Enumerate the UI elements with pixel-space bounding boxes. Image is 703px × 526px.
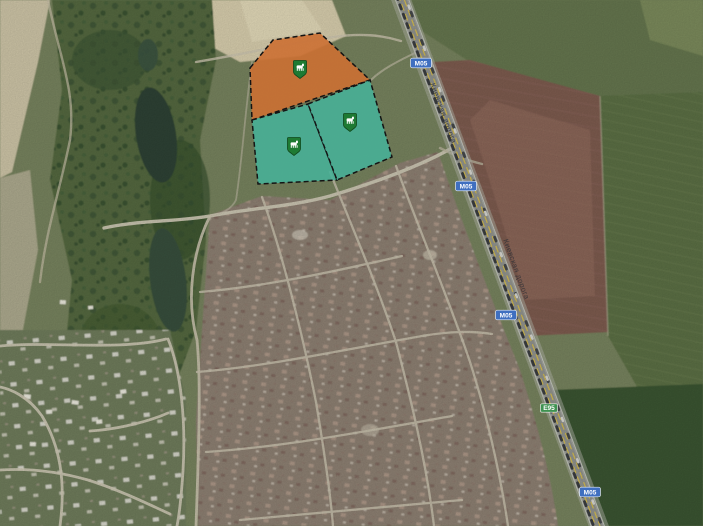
svg-text:M05: M05 [584, 489, 597, 496]
svg-text:E95: E95 [543, 405, 555, 412]
route-shield-m05: M05 [456, 181, 477, 191]
map-viewport[interactable]: Киевская дорога Киевская дорога M05 M05 … [0, 0, 703, 526]
svg-text:M05: M05 [415, 60, 428, 67]
svg-text:M05: M05 [460, 183, 473, 190]
route-shield-m05: M05 [580, 487, 601, 497]
route-shield-e95: E95 [541, 404, 558, 412]
svg-text:M05: M05 [500, 312, 513, 319]
route-shield-m05: M05 [496, 310, 517, 320]
route-shield-m05: M05 [411, 58, 432, 68]
satellite-map[interactable]: Киевская дорога Киевская дорога M05 M05 … [0, 0, 703, 526]
